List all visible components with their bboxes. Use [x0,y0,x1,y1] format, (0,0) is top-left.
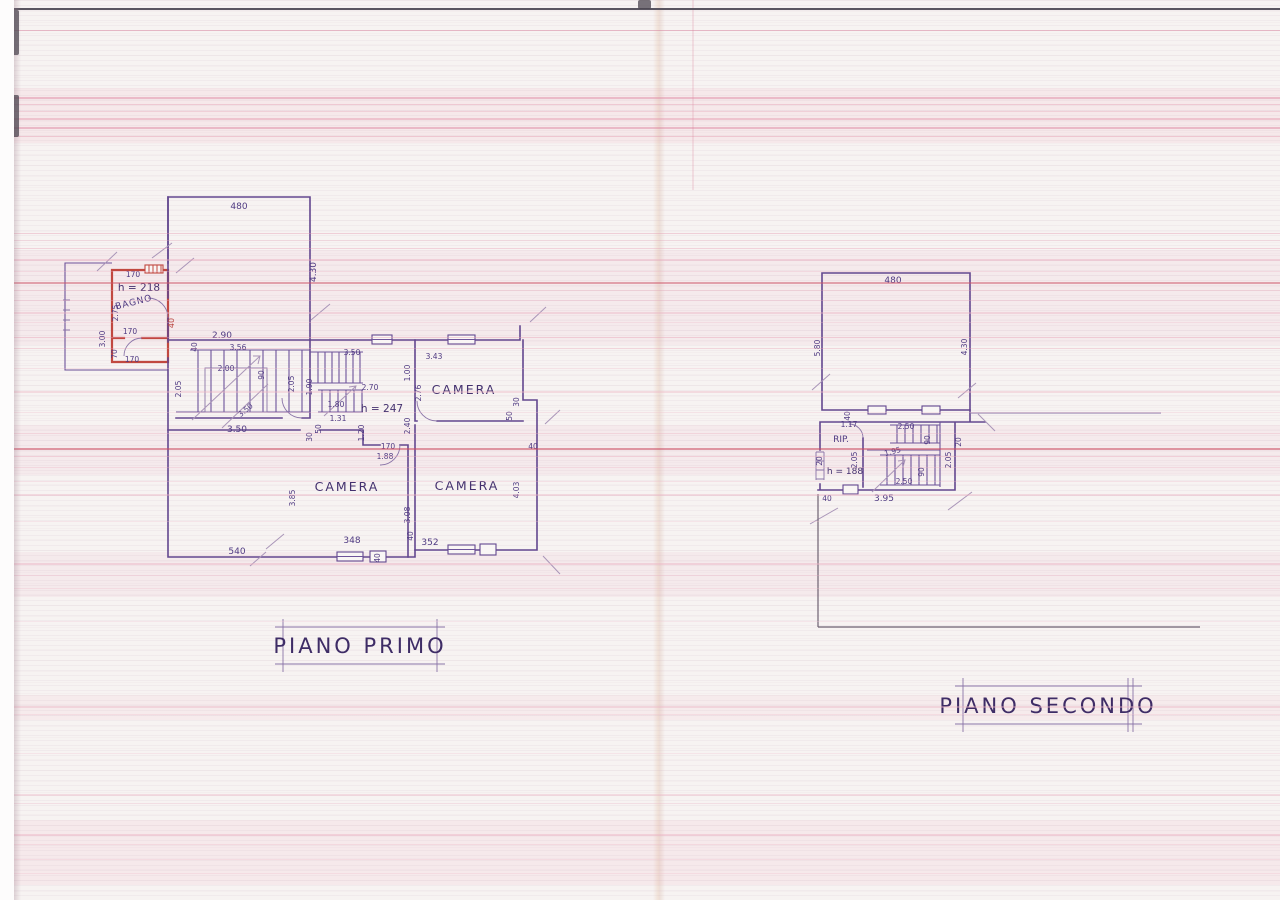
dim-label: 90 [917,467,926,477]
title-piano-secondo: PIANO SECONDO [939,678,1156,732]
dim-label: 2.76 [414,384,423,401]
dim-label: 3.50 [227,425,247,435]
dim-label: 3.00 [98,330,107,347]
plan-title: PIANO SECONDO [939,694,1156,718]
scanned-floor-plan-sheet: 480 4.30 170 h = 218 BAGNO 2.75 3.00 40 … [0,0,1280,900]
dim-label: 30 [305,432,314,442]
dim-label: 5.80 [813,339,822,356]
dim-label: 480 [884,276,901,286]
plan-title: PIANO PRIMO [273,634,446,658]
dim-label: 1.80 [328,400,345,409]
dim-label: 90 [257,370,266,380]
dim-label: 2.90 [212,331,232,341]
dim-label: 480 [230,202,247,212]
room-label: CAMERA [435,478,500,493]
dim-label: 40 [822,494,832,503]
dim-label: 4.30 [309,262,319,282]
height-label: h = 247 [361,403,403,415]
dim-label: 2.00 [218,364,235,373]
dim-label: 348 [343,536,360,546]
dim-label: 170 [123,327,138,336]
dim-label: 3.08 [403,506,412,523]
room-label: BAGNO [114,294,153,313]
scan-margin [0,0,14,900]
dim-label: 50 [505,411,514,421]
dim-label: 352 [421,538,438,548]
dim-label: 30 [512,397,521,407]
height-label: h = 218 [118,282,160,294]
title-piano-primo: PIANO PRIMO [273,619,446,672]
dim-label: 50 [314,424,323,434]
dim-label: 3.85 [288,489,297,506]
dim-label: 40 [190,342,199,352]
dim-label: 2.50 [896,477,913,486]
dim-label: 20 [815,456,824,466]
room-label: RIP. [833,435,849,445]
dim-label: 2.50 [898,422,915,431]
dim-label: 40 [406,531,415,541]
dim-label: 2.75 [111,304,120,321]
dim-label: 2.70 [362,383,379,392]
dim-label: 3.50 [236,401,255,419]
dim-label: 4.03 [512,481,521,498]
dim-label: 170 [126,270,141,279]
dim-label: 1.17 [841,420,858,429]
dim-label: 1.20 [357,424,366,441]
floor-plan-piano-secondo: 480 5.80 4.30 40 1.17 RIP. h = 188 20 2.… [810,273,1200,732]
dim-label: 40 [373,553,382,563]
dim-label: 20 [954,437,963,447]
dim-label: 1.90 [305,378,314,395]
dim-label: 4.30 [960,338,969,355]
floor-plan-piano-primo: 480 4.30 170 h = 218 BAGNO 2.75 3.00 40 … [63,197,560,672]
dim-label: 2.05 [174,380,183,397]
dim-label: 1.88 [377,452,394,461]
dim-label: 3.50 [344,348,361,357]
dim-label: 2.05 [850,451,859,468]
dim-label: 70 [110,349,119,359]
dim-label: 40 [528,442,538,451]
dim-label: 2.05 [287,375,296,392]
dim-label: 90 [923,435,932,445]
dim-label: 3.43 [426,352,443,361]
dimension-labels-piano-secondo: 480 5.80 4.30 40 1.17 RIP. h = 188 20 2.… [813,276,969,504]
dim-label: 170 [381,442,396,451]
floor-plan-drawing: 480 4.30 170 h = 218 BAGNO 2.75 3.00 40 … [0,0,1280,900]
dim-label: 1.95 [883,445,902,458]
dim-label: 540 [228,547,245,557]
dim-label: 1.31 [330,414,347,423]
scan-smudge [638,0,651,9]
dim-label: 40 [167,318,176,328]
room-label: CAMERA [315,479,380,494]
dim-label: 3.56 [230,343,247,352]
dim-label: 170 [125,355,140,364]
room-label: CAMERA [432,382,497,397]
dim-label: 3.95 [874,494,894,504]
dim-label: 2.05 [944,451,953,468]
dim-label: 1.00 [403,364,412,381]
dim-label: 2.40 [403,417,412,434]
